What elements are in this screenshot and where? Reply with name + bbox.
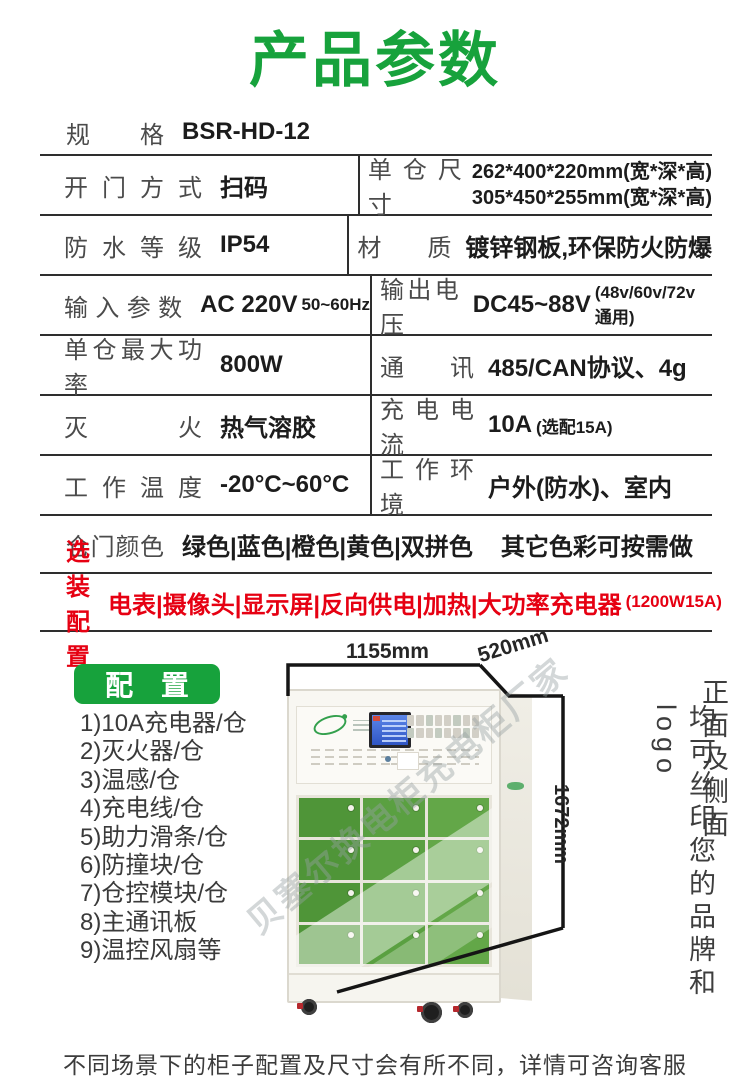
locker-door xyxy=(299,883,360,922)
spec-cell: 通 讯 485/CAN协议、4g xyxy=(372,336,712,394)
config-item: 4)充电线/仓 xyxy=(80,795,247,823)
indicator-lights xyxy=(407,715,479,738)
spec-label: 灭 火 xyxy=(64,408,202,443)
lcd-display xyxy=(372,715,408,745)
config-item: 6)防撞块/仓 xyxy=(80,852,247,880)
caster-wheel xyxy=(301,999,317,1015)
footer-note: 不同场景下的柜子配置及尺寸会有所不同，详情可咨询客服 xyxy=(0,1046,750,1080)
spec-cell: 工作温度 -20°C~60°C xyxy=(40,456,372,514)
cabinet-control-panel xyxy=(296,706,492,784)
spec-row-door-method-size: 开门方式 扫码 单仓尺寸 262*400*220mm(宽*深*高) 305*45… xyxy=(40,156,712,216)
spec-value-small: 50~60Hz xyxy=(301,295,370,315)
spec-value: AC 220V xyxy=(200,291,297,319)
spec-note: 其它色彩可按需做 xyxy=(501,527,693,562)
spec-row-waterproof-material: 防水等级 IP54 材 质 镀锌钢板,环保防火防爆 xyxy=(40,216,712,276)
spec-cell: 材 质 镀锌钢板,环保防火防爆 xyxy=(349,216,712,274)
spec-table: 规 格 BSR-HD-12 开门方式 扫码 单仓尺寸 262*400*220mm… xyxy=(40,110,712,632)
spec-value: 800W xyxy=(220,351,283,379)
spec-value: 10A xyxy=(488,411,532,439)
spec-value: 电表|摄像头|显示屏|反向供电|加热|大功率充电器 xyxy=(108,585,622,620)
locker-door xyxy=(428,883,489,922)
locker-door-grid xyxy=(296,795,492,967)
cabinet-side-logo xyxy=(507,782,524,790)
cabinet-base xyxy=(289,973,499,1001)
caster-wheel xyxy=(421,1002,442,1023)
config-item: 9)温控风扇等 xyxy=(80,937,247,965)
spec-row-fire-current: 灭 火 热气溶胶 充电电流 10A (选配15A) xyxy=(40,396,712,456)
spec-label: 通 讯 xyxy=(380,348,474,383)
locker-door xyxy=(428,925,489,964)
page-title: 产品参数 xyxy=(0,0,750,110)
spec-value: 262*400*220mm(宽*深*高) 305*450*255mm(宽*深*高… xyxy=(472,159,712,211)
spec-row-power-comm: 单仓最大功率 800W 通 讯 485/CAN协议、4g xyxy=(40,336,712,396)
spec-value: -20°C~60°C xyxy=(220,471,349,499)
spec-value: BSR-HD-12 xyxy=(182,118,310,146)
locker-door xyxy=(363,925,424,964)
locker-door xyxy=(363,840,424,879)
spec-label: 单仓最大功率 xyxy=(64,330,202,400)
config-item: 8)主通讯板 xyxy=(80,909,247,937)
spec-value-small: (1200W15A) xyxy=(626,592,722,612)
spec-row-door-colors: 仓门颜色 绿色|蓝色|橙色|黄色|双拼色 其它色彩可按需做 xyxy=(40,516,712,574)
cabinet-side-face xyxy=(500,692,532,1001)
width-dimension-label: 1155mm xyxy=(346,640,429,664)
spec-value: DC45~88V xyxy=(473,291,591,319)
spec-cell: 输入参数 AC 220V 50~60Hz xyxy=(40,276,372,334)
spec-label: 材 质 xyxy=(357,228,451,263)
lcd-screen xyxy=(369,712,411,748)
spec-cell: 灭 火 热气溶胶 xyxy=(40,396,372,454)
spec-value: 镀锌钢板,环保防火防爆 xyxy=(465,228,712,263)
locker-door xyxy=(299,840,360,879)
spec-value: 485/CAN协议、4g xyxy=(488,348,687,383)
charging-cabinet-image xyxy=(287,689,501,1003)
spec-value: 户外(防水)、室内 xyxy=(488,468,672,503)
spec-cell: 开门方式 扫码 xyxy=(40,156,360,214)
locker-door xyxy=(299,798,360,837)
spec-cell: 单仓最大功率 800W xyxy=(40,336,372,394)
spec-row-temp-env: 工作温度 -20°C~60°C 工作环境 户外(防水)、室内 xyxy=(40,456,712,516)
spec-value: 热气溶胶 xyxy=(220,408,316,443)
locker-door xyxy=(428,840,489,879)
spec-value: 绿色|蓝色|橙色|黄色|双拼色 xyxy=(182,527,473,562)
spec-label: 工作温度 xyxy=(64,468,202,503)
brand-logo-icon xyxy=(311,711,349,739)
spec-label: 防水等级 xyxy=(64,228,202,263)
config-badge: 配 置 xyxy=(74,664,220,704)
config-item: 2)灭火器/仓 xyxy=(80,738,247,766)
spec-label: 输出电压 xyxy=(380,270,459,340)
spec-label: 工作环境 xyxy=(380,450,474,520)
spec-cell: 防水等级 IP54 xyxy=(40,216,349,274)
spec-label: 开门方式 xyxy=(64,168,202,203)
locker-door xyxy=(363,798,424,837)
caster-wheel xyxy=(457,1002,473,1018)
config-item: 7)仓控模块/仓 xyxy=(80,880,247,908)
spec-cell: 工作环境 户外(防水)、室内 xyxy=(372,456,712,514)
spec-label: 规 格 xyxy=(66,115,164,150)
spec-row-optional-config: 选装配置 电表|摄像头|显示屏|反向供电|加热|大功率充电器 (1200W15A… xyxy=(40,574,712,632)
config-item: 5)助力滑条/仓 xyxy=(80,824,247,852)
spec-cell: 单仓尺寸 262*400*220mm(宽*深*高) 305*450*255mm(… xyxy=(360,156,712,214)
locker-door xyxy=(363,883,424,922)
silkscreen-note-line2: 均可丝印您的品牌和logo xyxy=(650,704,720,1034)
spec-row-input-output: 输入参数 AC 220V 50~60Hz 输出电压 DC45~88V (48v/… xyxy=(40,276,712,336)
config-item: 1)10A充电器/仓 xyxy=(80,710,247,738)
height-dimension-label: 1672mm xyxy=(549,784,572,864)
locker-door xyxy=(299,925,360,964)
spec-value: 扫码 xyxy=(220,168,268,203)
config-item: 3)温感/仓 xyxy=(80,767,247,795)
spec-cell: 充电电流 10A (选配15A) xyxy=(372,396,712,454)
figure-section: 配 置 1)10A充电器/仓 2)灭火器/仓 3)温感/仓 4)充电线/仓 5)… xyxy=(0,632,750,1034)
card-slot xyxy=(397,752,419,770)
config-list: 1)10A充电器/仓 2)灭火器/仓 3)温感/仓 4)充电线/仓 5)助力滑条… xyxy=(80,710,247,966)
spec-label: 单仓尺寸 xyxy=(368,150,462,220)
locker-door xyxy=(428,798,489,837)
spec-value-small: (选配15A) xyxy=(536,413,613,438)
spec-value-small: (48v/60v/72v通用) xyxy=(595,283,712,328)
spec-cell: 输出电压 DC45~88V (48v/60v/72v通用) xyxy=(372,276,712,334)
spec-label: 输入参数 xyxy=(64,288,182,323)
panel-button xyxy=(385,756,391,762)
spec-value: IP54 xyxy=(220,231,269,259)
